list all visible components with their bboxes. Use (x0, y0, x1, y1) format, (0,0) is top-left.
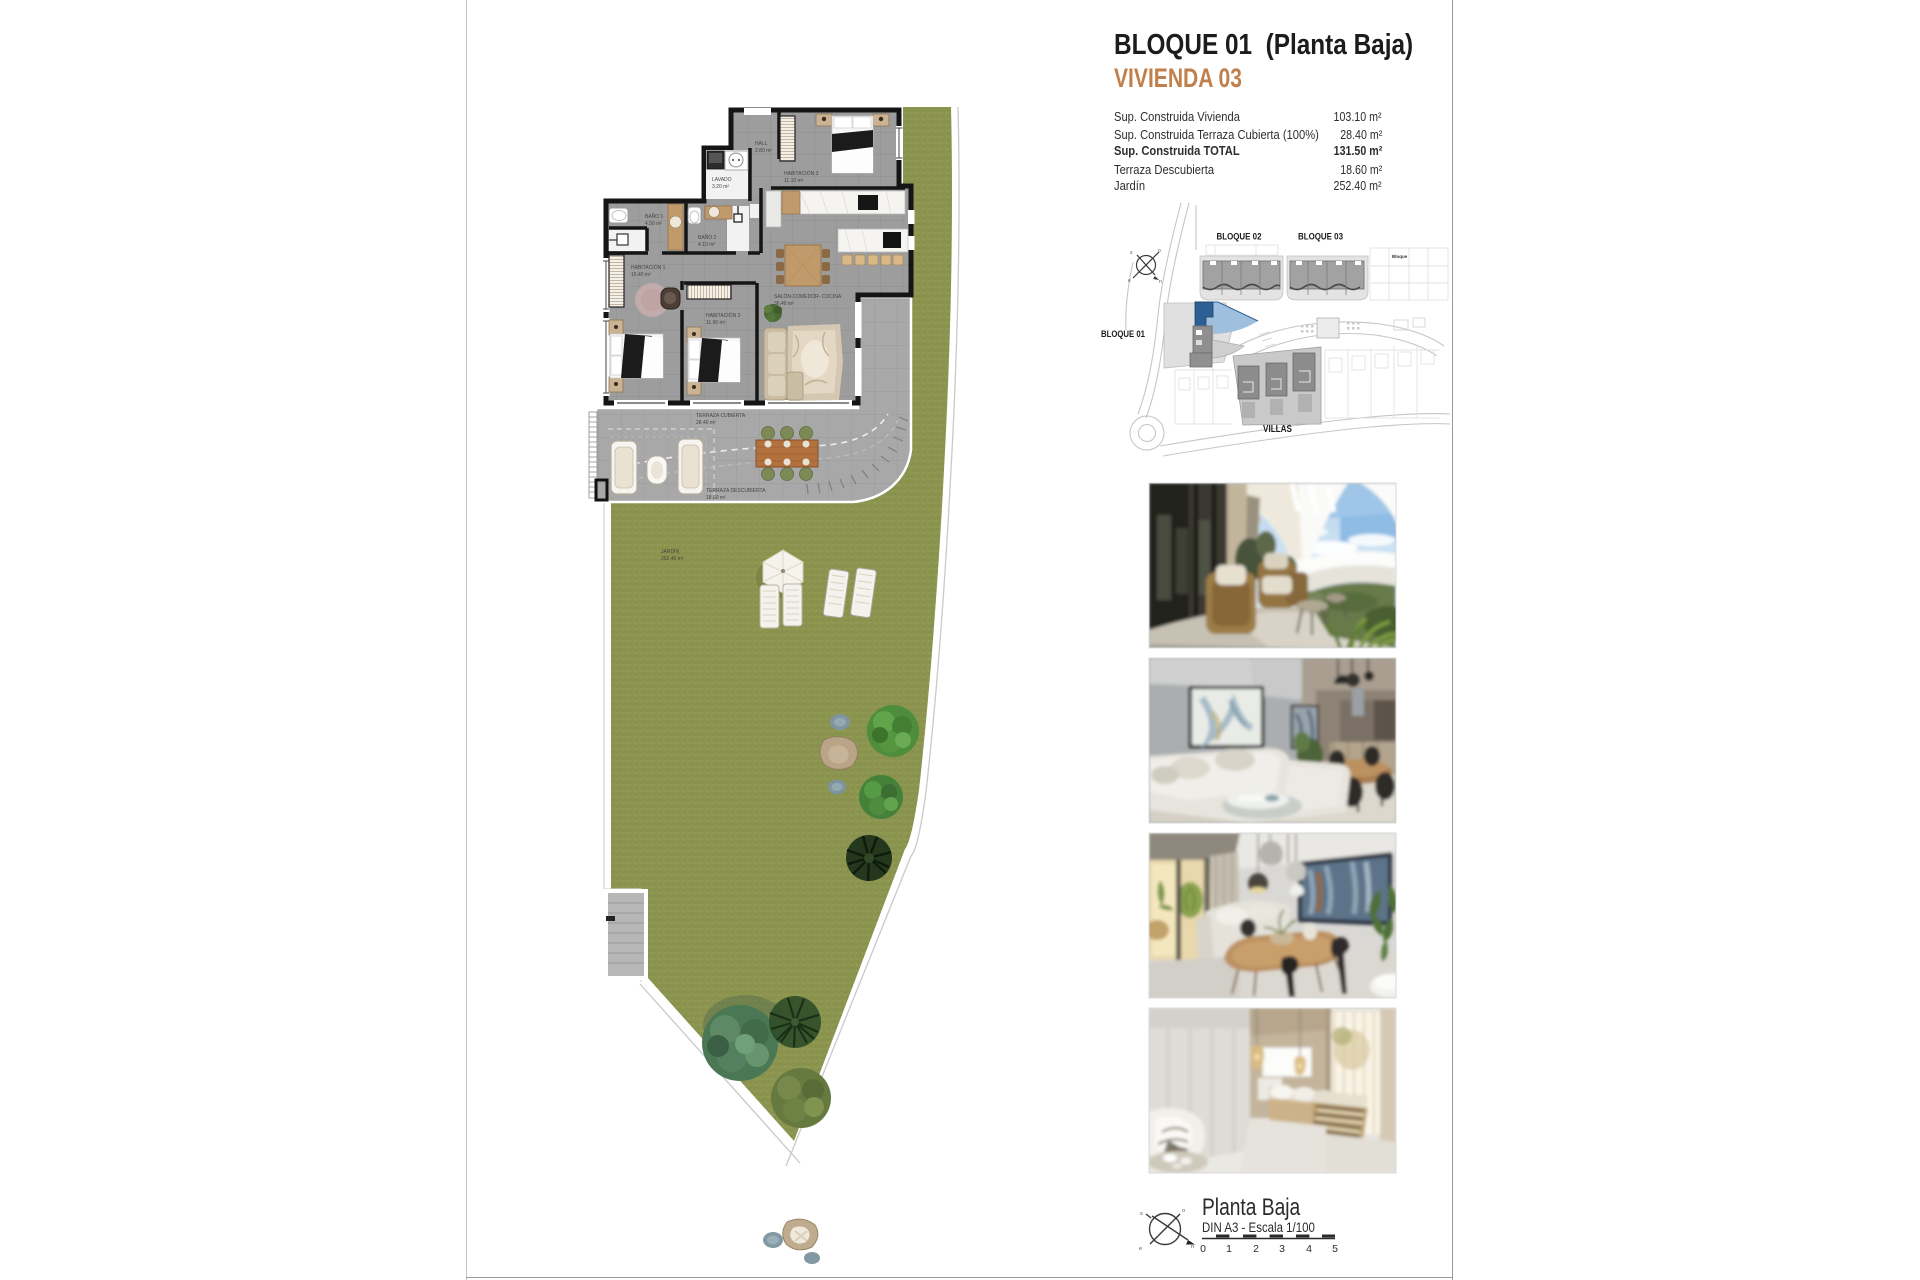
svg-text:s: s (1140, 1211, 1143, 1217)
svg-text:3.20 m²: 3.20 m² (712, 184, 729, 190)
svg-text:11.90 m²: 11.90 m² (706, 320, 726, 326)
svg-text:s: s (1130, 250, 1133, 256)
svg-text:15.40 m²: 15.40 m² (631, 272, 651, 278)
svg-text:5: 5 (1332, 1243, 1338, 1255)
svg-text:3: 3 (1279, 1243, 1285, 1255)
svg-text:11.10 m²: 11.10 m² (784, 178, 804, 184)
svg-text:28.40 m²: 28.40 m² (696, 420, 716, 426)
svg-text:SALÓN-COMEDOR- COCINA: SALÓN-COMEDOR- COCINA (774, 293, 842, 300)
svg-text:LAVADO: LAVADO (712, 177, 732, 183)
svg-text:BAÑO 2: BAÑO 2 (698, 234, 717, 241)
svg-text:JARDÍN: JARDÍN (661, 548, 679, 555)
svg-text:1: 1 (1226, 1243, 1232, 1255)
svg-text:4.10 m²: 4.10 m² (698, 242, 715, 248)
svg-text:n: n (1159, 279, 1162, 285)
svg-text:Bloque: Bloque (1392, 254, 1408, 259)
svg-text:o: o (1158, 248, 1161, 254)
svg-text:VILLAS: VILLAS (1263, 424, 1292, 435)
svg-text:18.60 m²: 18.60 m² (706, 495, 726, 501)
svg-text:HABITACIÓN 1: HABITACIÓN 1 (631, 264, 666, 271)
svg-text:TERRAZA DESCUBIERTA: TERRAZA DESCUBIERTA (706, 488, 766, 494)
svg-text:2: 2 (1253, 1243, 1259, 1255)
svg-text:HABITACIÓN 3: HABITACIÓN 3 (784, 170, 819, 177)
svg-text:HABITACIÓN 2: HABITACIÓN 2 (706, 312, 741, 319)
svg-text:n: n (1191, 1244, 1194, 1250)
svg-text:TERRAZA CUBIERTA: TERRAZA CUBIERTA (696, 413, 746, 419)
svg-text:252.40 m²: 252.40 m² (661, 556, 684, 562)
svg-text:0: 0 (1200, 1243, 1206, 1255)
svg-text:BLOQUE 02: BLOQUE 02 (1217, 232, 1262, 242)
svg-text:36.40 m²: 36.40 m² (774, 301, 794, 307)
svg-text:BAÑO 1: BAÑO 1 (645, 213, 664, 220)
svg-text:4: 4 (1306, 1243, 1312, 1255)
svg-text:e: e (1128, 278, 1131, 284)
svg-text:o: o (1182, 1208, 1185, 1214)
svg-text:e: e (1139, 1246, 1142, 1252)
svg-text:BLOQUE 03: BLOQUE 03 (1298, 232, 1343, 242)
svg-text:HALL: HALL (755, 141, 768, 147)
svg-text:4.50 m²: 4.50 m² (645, 221, 662, 227)
svg-text:BLOQUE 01: BLOQUE 01 (1101, 329, 1145, 339)
svg-text:2.80 m²: 2.80 m² (755, 148, 772, 154)
